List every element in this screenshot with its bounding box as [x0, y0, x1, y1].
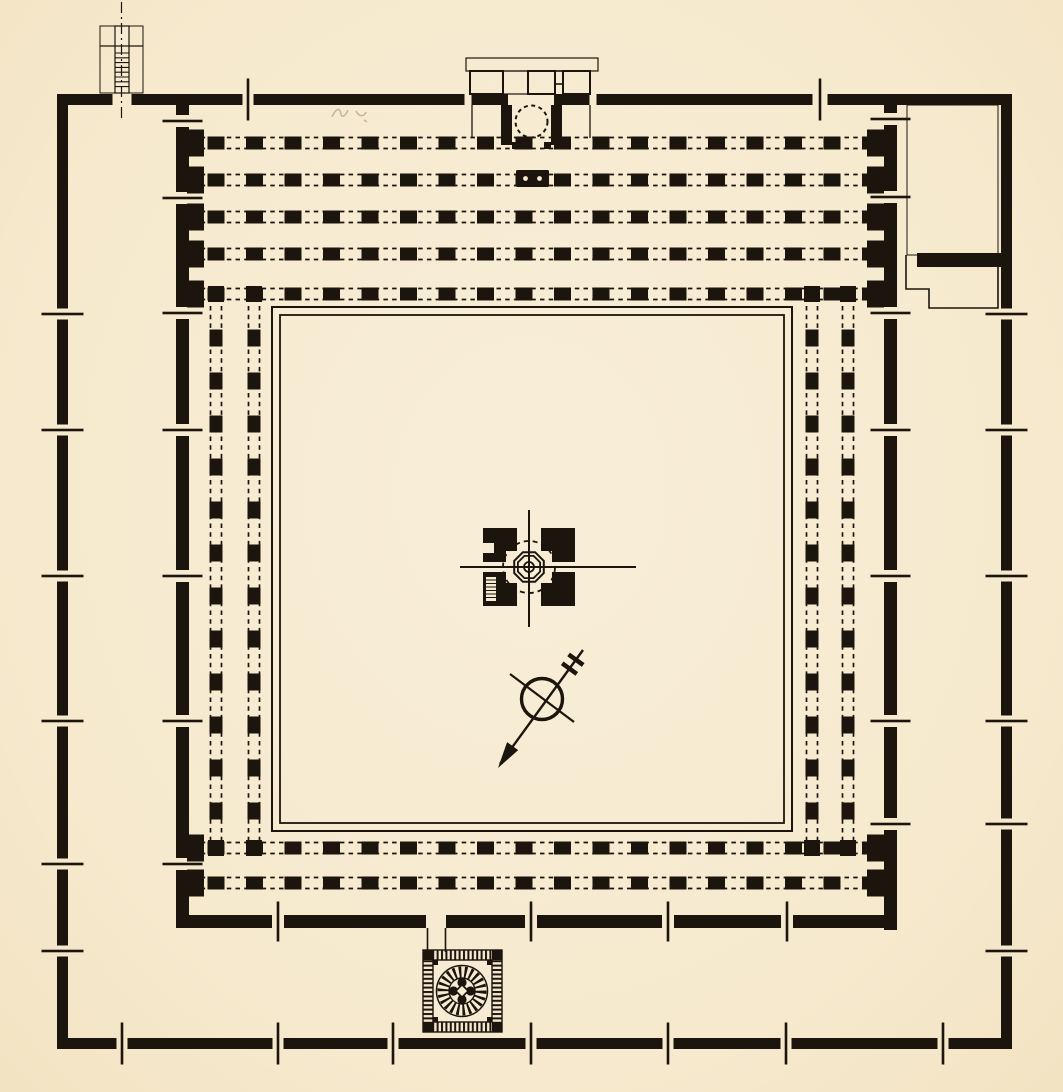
plan-sheet: Ground plan of a hypostyle courtyard mos… — [0, 0, 1063, 1092]
gate-tick — [163, 312, 203, 315]
gate-tick — [667, 1023, 670, 1065]
minaret-room-dot-nw — [433, 960, 438, 965]
pier — [248, 717, 261, 734]
courtyard-inner-edge — [280, 315, 784, 823]
outer-west — [57, 957, 68, 1050]
inner-south — [793, 915, 897, 928]
pier — [670, 211, 687, 224]
pier — [248, 459, 261, 476]
pier — [210, 631, 223, 648]
pier — [631, 174, 648, 187]
gate-tick — [42, 313, 84, 316]
outer-south — [792, 1038, 938, 1049]
engaged-pier-east — [867, 204, 884, 231]
gate-tick — [42, 429, 84, 432]
minaret-room-dot-ne — [487, 960, 492, 965]
pier — [210, 545, 223, 562]
minaret-corridor — [428, 928, 446, 952]
mihrab-foot-west — [512, 142, 519, 149]
gate-tick — [163, 720, 203, 723]
pier — [362, 842, 379, 855]
walls — [57, 94, 1012, 1049]
pier — [842, 502, 855, 519]
outer-west — [57, 436, 68, 571]
pier — [785, 248, 802, 261]
outer-east — [1001, 436, 1012, 571]
gate-tick — [871, 575, 911, 578]
outer-north — [597, 94, 813, 105]
pier — [210, 588, 223, 605]
outer-north — [554, 94, 590, 105]
gate-tick — [277, 902, 280, 942]
inner-east — [884, 582, 897, 715]
minaret-corner-nw — [423, 950, 433, 960]
pier — [362, 248, 379, 261]
pier — [670, 288, 687, 301]
junction-pier — [246, 840, 262, 856]
pier — [708, 877, 725, 890]
gate-tick — [871, 196, 911, 199]
gate-tick — [871, 312, 911, 315]
pier — [747, 248, 764, 261]
pier — [285, 842, 302, 855]
pier — [208, 211, 225, 224]
engaged-pier-west — [187, 870, 204, 897]
pier — [362, 877, 379, 890]
inner-west — [176, 582, 189, 715]
pier — [554, 877, 571, 890]
pier — [210, 416, 223, 433]
pier — [631, 288, 648, 301]
outer-east — [1001, 94, 1012, 309]
gate-tick — [163, 120, 203, 123]
gate-tick — [392, 1023, 395, 1065]
pier — [806, 459, 819, 476]
pier — [210, 803, 223, 820]
mihrab-pier-east — [551, 105, 562, 145]
pier — [246, 137, 263, 150]
courtyard-outer-edge — [272, 307, 792, 831]
pier — [806, 803, 819, 820]
pier — [806, 502, 819, 519]
pier — [248, 373, 261, 390]
pier — [439, 842, 456, 855]
pier — [554, 248, 571, 261]
pier — [477, 877, 494, 890]
pier — [842, 674, 855, 691]
pier — [824, 288, 841, 301]
pier — [516, 248, 533, 261]
north-arrow-cross-line — [510, 674, 574, 722]
pier — [593, 174, 610, 187]
engaged-pier-east — [867, 870, 884, 897]
outer-south — [128, 1038, 273, 1049]
gate-tick — [986, 429, 1028, 432]
outer-west — [57, 727, 68, 859]
inner-west — [176, 727, 189, 858]
outer-south — [674, 1038, 781, 1049]
pier — [593, 288, 610, 301]
pier — [210, 502, 223, 519]
colonnades — [192, 137, 884, 890]
minaret-band-bottom — [423, 1022, 502, 1032]
gate-tick — [163, 863, 203, 866]
gate-tick — [871, 720, 911, 723]
gate-tick — [819, 79, 822, 121]
pier — [842, 631, 855, 648]
pier — [516, 842, 533, 855]
mihrab-niche-circle — [516, 106, 548, 138]
inner-west — [176, 105, 189, 115]
engaged-pier-west — [187, 167, 204, 194]
pier — [248, 502, 261, 519]
pier — [210, 330, 223, 347]
pier — [477, 288, 494, 301]
minbar-pier — [516, 170, 549, 187]
pier — [246, 248, 263, 261]
pier — [323, 248, 340, 261]
outer-north — [132, 94, 243, 105]
mihrab-room-center — [528, 71, 555, 94]
pier — [842, 760, 855, 777]
gate-tick — [42, 863, 84, 866]
mihrab-pier-west — [501, 105, 512, 145]
minaret-corner-ne — [492, 950, 502, 960]
outer-west — [57, 582, 68, 716]
pencil-note — [332, 109, 367, 122]
mihrab-hatch-block — [503, 71, 528, 94]
pier — [631, 842, 648, 855]
corner-annex-wall — [917, 253, 1001, 267]
fountain-notch-nw-side — [483, 543, 494, 553]
minbar-socket-2 — [537, 176, 542, 181]
pier — [248, 674, 261, 691]
pier — [842, 373, 855, 390]
mihrab-room-west — [470, 71, 503, 94]
pier — [248, 803, 261, 820]
gate-tick — [247, 79, 250, 121]
pier — [806, 416, 819, 433]
outer-south — [57, 1038, 117, 1049]
engaged-pier-west — [187, 204, 204, 231]
gate-tick — [986, 823, 1028, 826]
minbar-socket-1 — [523, 176, 528, 181]
pier — [323, 174, 340, 187]
pier — [747, 137, 764, 150]
mihrab-complex — [466, 58, 598, 187]
pier — [323, 877, 340, 890]
pier — [842, 545, 855, 562]
junction-pier — [246, 286, 262, 302]
outer-east — [1001, 582, 1012, 716]
pier — [439, 211, 456, 224]
pier — [747, 174, 764, 187]
pier — [477, 174, 494, 187]
pier — [593, 248, 610, 261]
engaged-pier-east — [867, 241, 884, 268]
inner-south — [446, 915, 525, 928]
minaret-corner-se — [492, 1022, 502, 1032]
gate-tick — [121, 1023, 124, 1065]
pier — [477, 211, 494, 224]
inner-east — [884, 105, 897, 113]
north-arrow-fletch-2 — [562, 663, 577, 674]
pier — [842, 803, 855, 820]
minaret-band-left — [423, 950, 433, 1032]
pier — [210, 373, 223, 390]
pier — [554, 174, 571, 187]
pier — [362, 211, 379, 224]
pier — [516, 288, 533, 301]
pier — [400, 288, 417, 301]
mihrab-hatch-band — [466, 58, 598, 71]
engaged-pier-east — [867, 281, 884, 308]
minaret-band-right — [492, 950, 502, 1032]
pier — [631, 877, 648, 890]
mihrab-screen-lines — [472, 105, 590, 138]
pier — [747, 211, 764, 224]
outer-west — [57, 94, 68, 309]
gate-tick — [277, 1023, 280, 1065]
inner-west — [176, 204, 189, 307]
pier — [516, 877, 533, 890]
pier — [670, 877, 687, 890]
gate-tick — [667, 902, 670, 942]
outer-west — [57, 320, 68, 425]
pier — [708, 842, 725, 855]
pier — [824, 248, 841, 261]
pier — [631, 137, 648, 150]
pier — [824, 877, 841, 890]
pier — [708, 137, 725, 150]
pier — [554, 288, 571, 301]
engaged-pier-west — [187, 281, 204, 308]
pier — [806, 330, 819, 347]
courtyard-border — [272, 307, 792, 831]
gate-tick — [163, 429, 203, 432]
outer-south — [949, 1038, 1013, 1049]
pier — [210, 717, 223, 734]
pier — [806, 588, 819, 605]
pier — [670, 248, 687, 261]
pier — [285, 877, 302, 890]
pier — [593, 842, 610, 855]
minbar-block — [516, 170, 549, 187]
outer-south — [399, 1038, 526, 1049]
pier — [248, 631, 261, 648]
inner-east — [884, 727, 897, 818]
corner-annex — [906, 105, 1001, 308]
pier — [806, 545, 819, 562]
pier — [285, 174, 302, 187]
pier — [400, 248, 417, 261]
pier — [323, 288, 340, 301]
gate-tick — [942, 1023, 945, 1065]
outer-north — [472, 94, 509, 105]
engaged-piers — [187, 130, 884, 897]
pier — [670, 842, 687, 855]
pier — [824, 137, 841, 150]
pier — [554, 211, 571, 224]
outer-north — [254, 94, 465, 105]
gate-tick — [986, 313, 1028, 316]
gate-tick — [42, 950, 84, 953]
pier — [708, 211, 725, 224]
pier — [593, 877, 610, 890]
mosque-plan-drawing: Ground plan of a hypostyle courtyard mos… — [0, 0, 1063, 1092]
pier — [439, 174, 456, 187]
pier — [246, 211, 263, 224]
pier — [824, 174, 841, 187]
outer-east — [1001, 320, 1012, 425]
engaged-pier-west — [187, 835, 204, 862]
pier — [806, 631, 819, 648]
inner-south — [674, 915, 781, 928]
junction-pier — [804, 286, 820, 302]
north-arrow-head — [498, 742, 518, 768]
pier — [708, 174, 725, 187]
pier — [285, 137, 302, 150]
pier — [670, 174, 687, 187]
pier — [248, 416, 261, 433]
pier — [477, 137, 494, 150]
pier — [806, 760, 819, 777]
pier — [439, 137, 456, 150]
pier — [285, 248, 302, 261]
pier — [708, 248, 725, 261]
pier — [285, 211, 302, 224]
pier — [248, 330, 261, 347]
pier — [210, 674, 223, 691]
mihrab-room-east — [563, 71, 590, 94]
mihrab-foot-east — [544, 142, 551, 149]
junction-pier — [840, 840, 856, 856]
outer-east — [1001, 727, 1012, 819]
gate-tick — [986, 575, 1028, 578]
minaret — [423, 928, 502, 1032]
pier — [323, 211, 340, 224]
minaret-room-dot-se — [487, 1017, 492, 1022]
pier — [670, 137, 687, 150]
pier — [824, 842, 841, 855]
corner-annex-hatch — [907, 105, 998, 255]
pier — [208, 137, 225, 150]
pier — [842, 717, 855, 734]
gate-tick — [42, 720, 84, 723]
pier — [248, 760, 261, 777]
north-arrow — [498, 650, 583, 768]
pier — [362, 137, 379, 150]
inner-west — [176, 436, 189, 570]
gate-tick — [786, 902, 789, 942]
pier — [362, 174, 379, 187]
north-arrow-fletch-1 — [569, 654, 584, 665]
pier — [785, 288, 802, 301]
inner-south — [176, 915, 272, 928]
gate-tick — [530, 902, 533, 942]
pier — [631, 211, 648, 224]
gate-tick — [986, 950, 1028, 953]
engaged-pier-east — [867, 835, 884, 862]
pier — [323, 137, 340, 150]
junction-pier — [840, 286, 856, 302]
pier — [842, 459, 855, 476]
pier — [400, 174, 417, 187]
pier — [747, 877, 764, 890]
minaret-band-top — [423, 950, 502, 960]
pier — [439, 288, 456, 301]
pier — [285, 288, 302, 301]
pier — [477, 248, 494, 261]
minaret-room-dot-sw — [433, 1017, 438, 1022]
mihrab-room-notch — [555, 71, 563, 84]
gate-tick — [871, 429, 911, 432]
pier — [785, 137, 802, 150]
gate-tick — [871, 823, 911, 826]
pier — [842, 416, 855, 433]
pier — [785, 211, 802, 224]
inner-east — [884, 436, 897, 570]
outer-east — [1001, 830, 1012, 946]
fountain-pavilion — [460, 510, 636, 627]
pier — [516, 211, 533, 224]
pier — [842, 588, 855, 605]
pier — [208, 174, 225, 187]
outer-north — [828, 94, 1013, 105]
pier — [477, 842, 494, 855]
pier — [708, 288, 725, 301]
pier — [842, 330, 855, 347]
pier — [210, 760, 223, 777]
pier — [208, 248, 225, 261]
outer-south — [537, 1038, 663, 1049]
pier — [400, 137, 417, 150]
pier — [439, 877, 456, 890]
inner-east — [884, 203, 897, 307]
gate-tick — [42, 575, 84, 578]
pier — [208, 877, 225, 890]
inner-south — [284, 915, 426, 928]
minaret-corner-sw — [423, 1022, 433, 1032]
well-hatch-right — [129, 26, 143, 93]
gate-tick — [986, 720, 1028, 723]
inner-west — [176, 319, 189, 424]
gate-tick — [530, 1023, 533, 1065]
outer-west — [57, 870, 68, 946]
pier — [747, 288, 764, 301]
pier — [400, 877, 417, 890]
pier — [554, 842, 571, 855]
pier — [806, 674, 819, 691]
pier — [246, 877, 263, 890]
inner-south — [537, 915, 662, 928]
engaged-pier-west — [187, 130, 204, 157]
pier — [362, 288, 379, 301]
pier — [248, 588, 261, 605]
gate-tick — [785, 1023, 788, 1065]
pier — [400, 842, 417, 855]
gate-tick — [163, 575, 203, 578]
pier — [248, 545, 261, 562]
pier — [747, 842, 764, 855]
well-hatch-left — [100, 26, 115, 93]
engaged-pier-west — [187, 241, 204, 268]
pier — [593, 137, 610, 150]
inner-east — [884, 319, 897, 424]
pier — [323, 842, 340, 855]
pier — [806, 373, 819, 390]
pier — [593, 211, 610, 224]
